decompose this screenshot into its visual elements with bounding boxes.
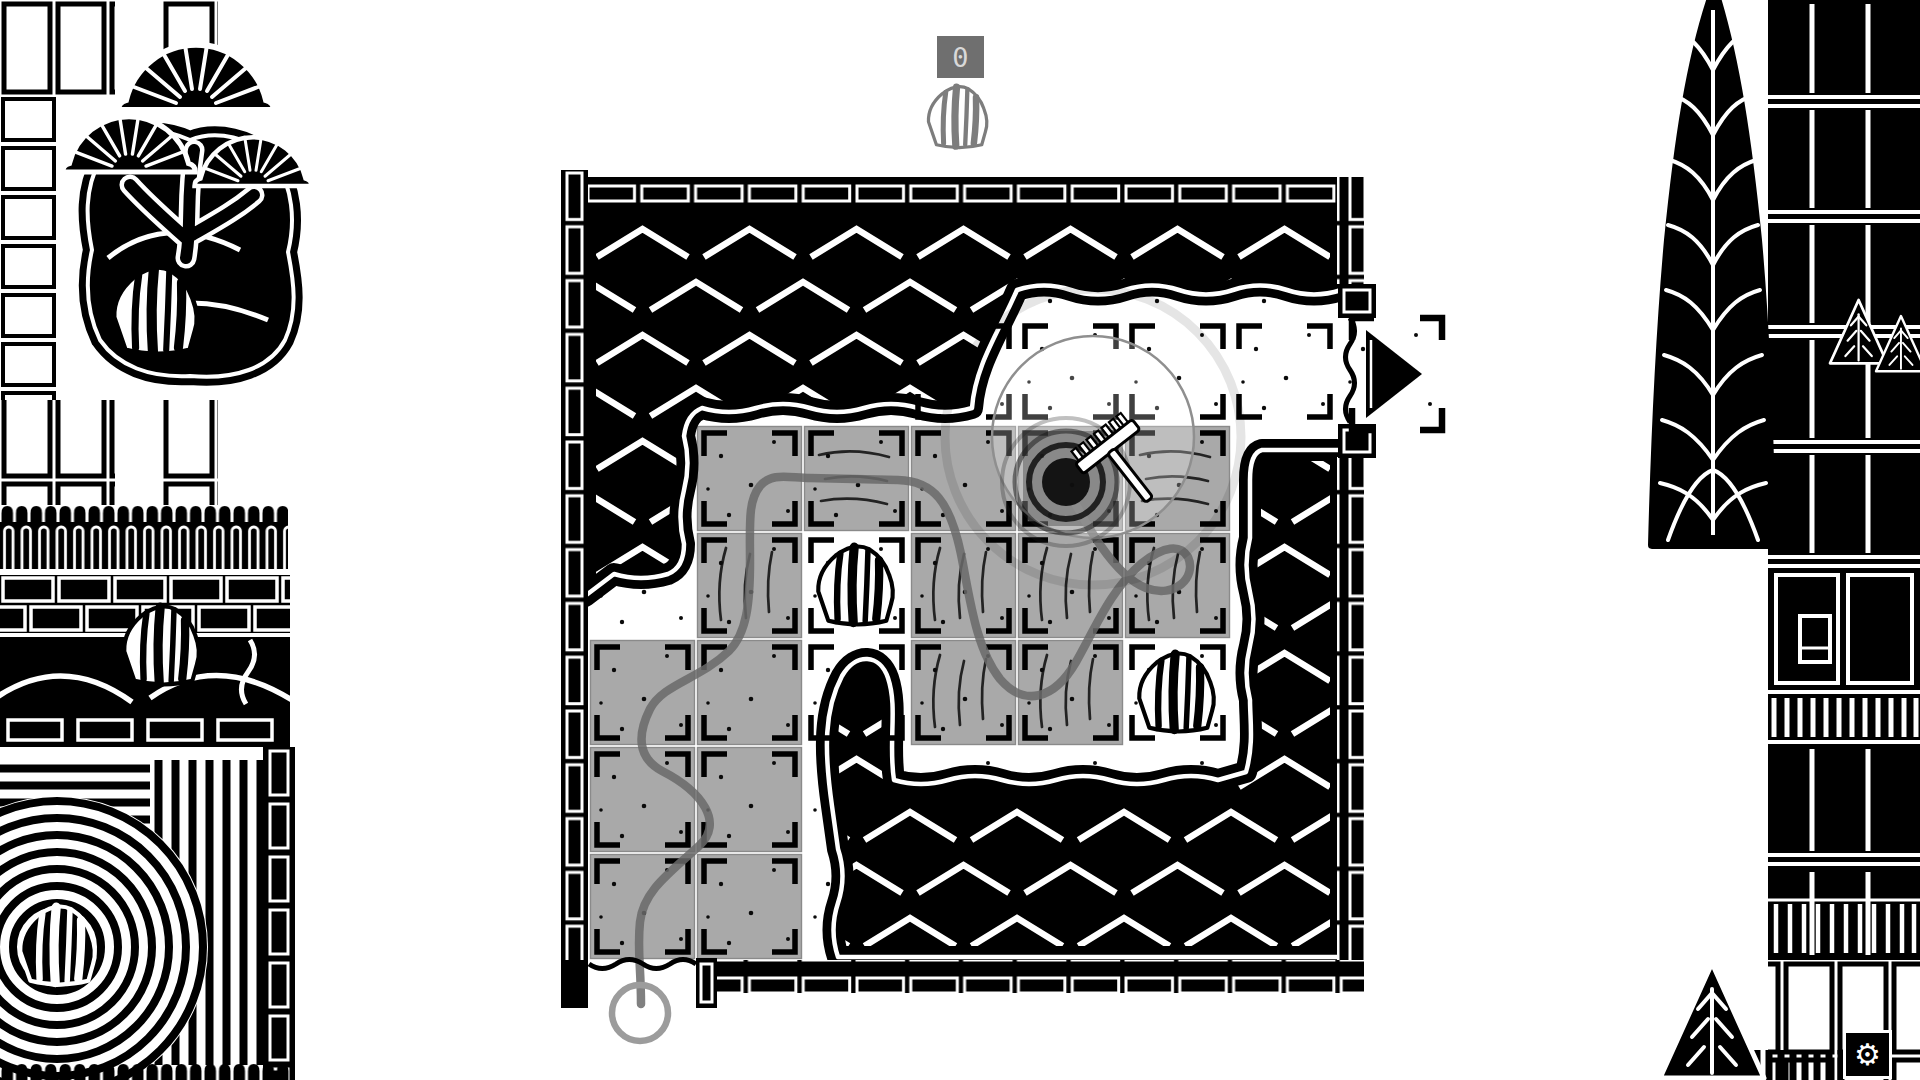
border-left (561, 170, 588, 1008)
settings-button[interactable]: ⚙ (1843, 1030, 1892, 1079)
border-top (585, 177, 1341, 210)
border-right-lower (1337, 457, 1364, 993)
bonsai-canopy (118, 45, 274, 110)
scene-art (0, 0, 1920, 1080)
left-garden-decoration (0, 0, 312, 1080)
gear-icon: ⚙ (1854, 1040, 1881, 1070)
zen-gravel-pattern (0, 760, 265, 1080)
big-pine-icon (1660, 963, 1764, 1078)
rocks-remaining-counter: 0 (937, 36, 984, 78)
right-city-decoration (1652, 0, 1920, 1080)
game-stage: 0 ⚙ (0, 0, 1920, 1080)
building-facade (1768, 0, 1920, 960)
gravel-border-column (263, 747, 295, 1080)
border-bottom (715, 960, 1364, 993)
border-right-upper (1337, 177, 1364, 284)
bonsai-canopy (63, 117, 196, 172)
bottom-picket-fence (0, 1062, 290, 1080)
game-board (561, 170, 1442, 1041)
garden-fence (0, 505, 292, 747)
panel-band (0, 713, 290, 747)
counter-rock-icon (918, 76, 998, 156)
tall-cypress-tree (1652, 0, 1772, 545)
